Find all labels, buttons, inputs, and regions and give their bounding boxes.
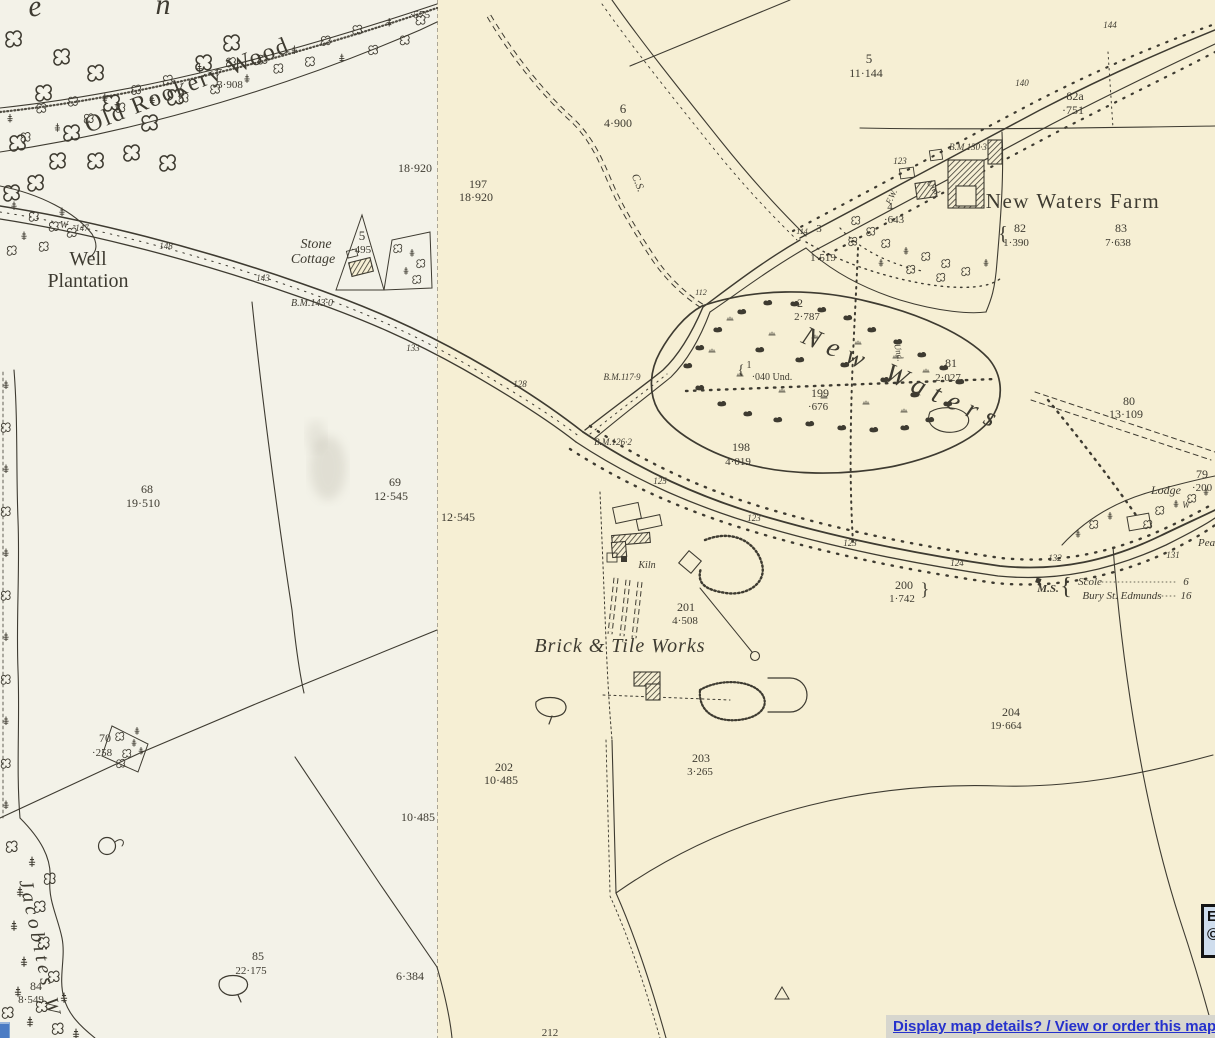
map-label: 4: [887, 201, 893, 213]
edge-attribution-box[interactable]: E ©: [1201, 904, 1215, 958]
map-label: 6·384: [396, 969, 424, 983]
map-label: ·200: [1192, 482, 1213, 494]
map-label: 123: [747, 513, 761, 523]
map-label: 81: [945, 356, 957, 370]
map-label: 19·664: [990, 720, 1022, 732]
map-label: 4·508: [672, 615, 698, 627]
map-label: 82a: [1066, 89, 1084, 103]
map-label: {: [738, 363, 745, 378]
map-label: Kiln: [637, 560, 655, 571]
map-label: 70: [99, 731, 111, 745]
map-label: ·258: [92, 747, 113, 759]
historic-map-viewer: enOld Rookery Wood73·908·57518·92019718·…: [0, 0, 1215, 1038]
map-label: n: [156, 0, 171, 21]
map-label: 19·510: [126, 496, 160, 510]
map-label: 22·175: [235, 965, 267, 977]
map-label: 124: [950, 558, 964, 568]
map-label: 3·908: [217, 79, 243, 91]
map-label: 147: [75, 223, 89, 233]
map-label: 79: [1196, 467, 1208, 481]
map-label: 16: [1181, 590, 1193, 602]
map-label: 82: [1014, 221, 1026, 235]
map-label: {: [1060, 574, 1072, 600]
map-label: Cottage: [291, 252, 335, 267]
map-label: 80: [1123, 394, 1135, 408]
map-label: 133: [406, 343, 420, 353]
map-link-bar: Display map details? / View or order thi…: [886, 1015, 1215, 1038]
map-label: 18·920: [459, 190, 493, 204]
map-label: 112: [695, 288, 706, 297]
map-label: 131: [1166, 550, 1180, 560]
map-label: 6: [1183, 576, 1189, 588]
map-label: 1·519: [810, 252, 836, 264]
map-label: Lodge: [1150, 483, 1182, 497]
copyright-icon: ©: [1207, 925, 1215, 944]
map-label: 10·485: [401, 810, 435, 824]
map-label: Plantation: [47, 270, 128, 292]
map-label: 114: [796, 227, 807, 236]
map-tile-right: [437, 0, 1215, 1038]
map-label: 204: [1002, 705, 1020, 719]
edge-box-text: E: [1207, 908, 1215, 925]
map-label: 148: [159, 241, 173, 251]
map-label: ·676: [808, 401, 829, 413]
map-label: B.M.117·9: [603, 372, 641, 382]
map-label: 12·545: [374, 489, 408, 503]
map-label: 2·027: [935, 372, 961, 384]
map-label: 2·787: [794, 311, 820, 323]
map-label: Stone: [300, 237, 331, 252]
map-label: 200: [895, 578, 913, 592]
map-label: 12·545: [441, 510, 475, 524]
map-label: Scole: [1078, 576, 1102, 588]
map-label: B.M.143·0: [291, 298, 333, 309]
map-label: Brick & Tile Works: [534, 635, 705, 657]
map-label: 128: [513, 379, 527, 389]
map-label: 5: [359, 228, 366, 243]
map-label: 68: [141, 482, 153, 496]
map-label: 2: [797, 296, 803, 310]
map-label: }: [921, 579, 930, 599]
map-label: 199: [811, 386, 829, 400]
map-label: 1: [747, 360, 752, 371]
map-label: 4·019: [725, 456, 751, 468]
map-label: 202: [495, 760, 513, 774]
map-label: ·495: [351, 244, 372, 256]
map-label: 123: [893, 156, 907, 166]
map-label: ·643: [884, 214, 905, 226]
map-label: 69: [389, 475, 401, 489]
map-canvas[interactable]: enOld Rookery Wood73·908·57518·92019718·…: [0, 0, 1215, 1038]
map-label: 1·390: [1003, 237, 1029, 249]
map-label: B.M.130·3: [949, 142, 987, 152]
map-label: New Waters Farm: [986, 189, 1160, 213]
map-label: ·751: [1062, 103, 1084, 117]
map-label: 3: [816, 223, 822, 235]
map-label: 83: [1115, 221, 1127, 235]
map-label: Well: [69, 248, 107, 270]
scan-smudge: [306, 420, 326, 452]
map-label: 3·265: [687, 766, 713, 778]
map-label: 13·109: [1109, 407, 1143, 421]
map-label: 85: [252, 949, 264, 963]
map-details-link[interactable]: Display map details? / View or order thi…: [893, 1018, 1215, 1035]
map-label: 18·920: [398, 161, 432, 175]
map-label: 143: [256, 273, 270, 283]
corner-control[interactable]: [0, 1022, 10, 1038]
map-label: 212: [542, 1027, 559, 1038]
map-label: 203: [692, 751, 710, 765]
map-label: ·575: [410, 9, 431, 21]
map-label: Pea: [1197, 537, 1215, 549]
map-label: 11·144: [849, 66, 883, 80]
map-label: 10·485: [484, 773, 518, 787]
map-label: ·040 Und.: [752, 372, 793, 383]
map-label: M.S.: [1036, 583, 1058, 595]
map-label: 5: [866, 51, 873, 66]
map-label: 123: [843, 538, 857, 548]
map-label: 132: [1048, 553, 1062, 563]
map-label: 197: [469, 177, 487, 191]
map-label: 140: [1015, 78, 1029, 88]
map-label: 201: [677, 600, 695, 614]
map-label: 125: [653, 476, 667, 486]
map-label: 1·742: [889, 593, 915, 605]
map-label: B.M.126·2: [594, 437, 632, 447]
map-label: 198: [732, 440, 750, 454]
map-label: Bury St. Edmunds: [1082, 590, 1161, 602]
map-label: 6: [620, 101, 627, 116]
map-label: 7·638: [1105, 237, 1131, 249]
map-label: 144: [1103, 20, 1117, 30]
map-label: 4·900: [604, 116, 632, 130]
